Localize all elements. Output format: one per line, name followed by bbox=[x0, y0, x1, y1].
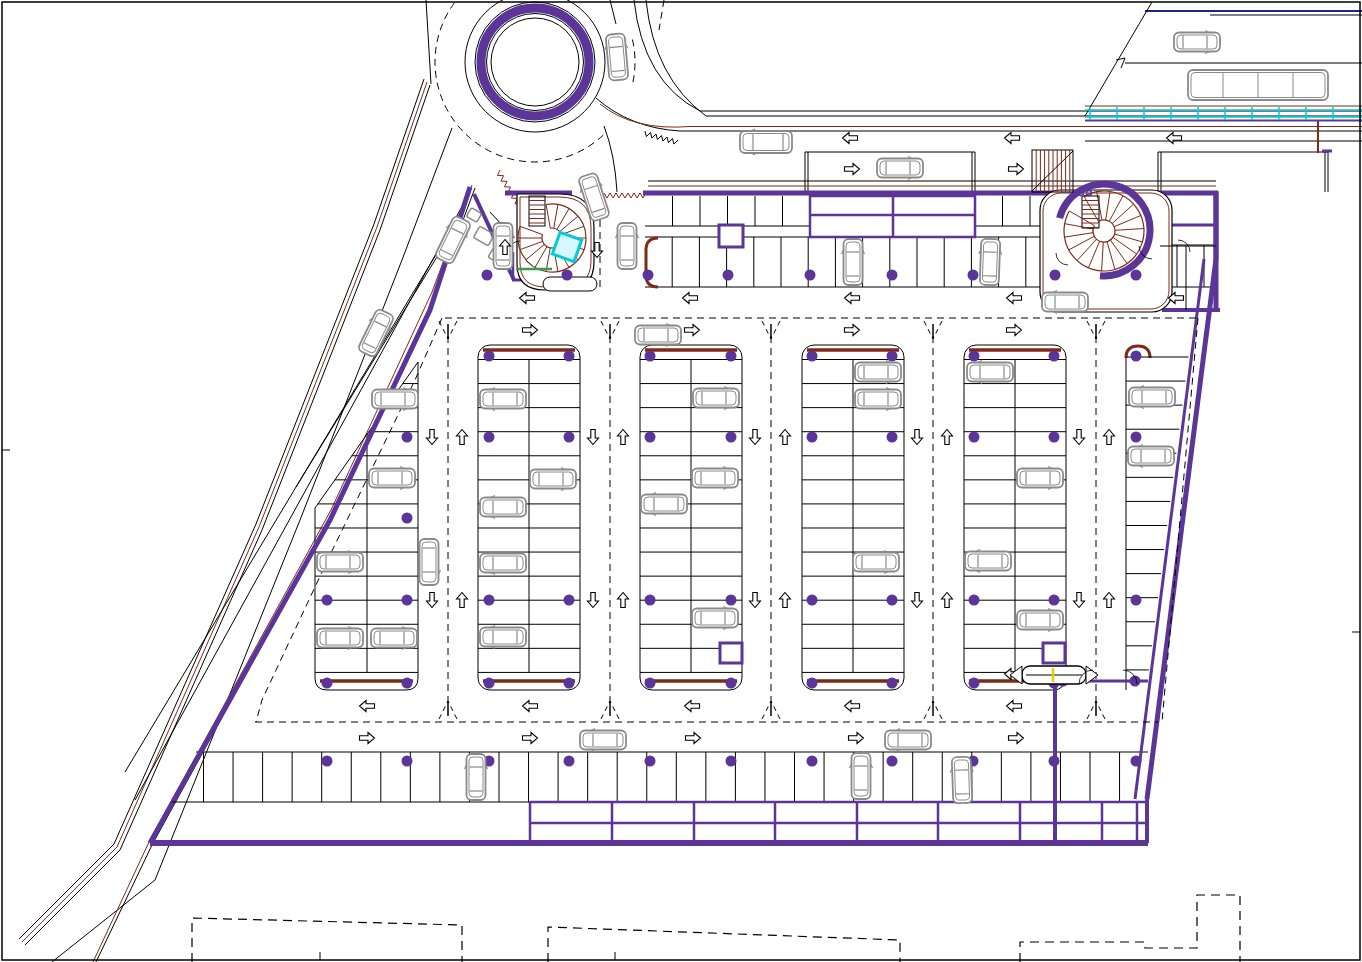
car-icon bbox=[850, 753, 873, 799]
direction-arrow-icon bbox=[843, 133, 858, 144]
vehicle-body bbox=[434, 215, 471, 265]
column-dot bbox=[807, 351, 818, 362]
column-dot bbox=[564, 678, 575, 689]
direction-arrow-icon bbox=[1005, 133, 1020, 144]
car-icon bbox=[480, 626, 526, 649]
aisle-merge-line bbox=[448, 321, 457, 339]
roundabout-circle bbox=[487, 14, 584, 111]
car-icon bbox=[480, 496, 526, 519]
car-icon bbox=[740, 129, 792, 155]
column-dot bbox=[1131, 432, 1142, 443]
direction-arrow-icon bbox=[780, 593, 791, 608]
column-dot bbox=[807, 678, 818, 689]
car-icon bbox=[418, 539, 441, 585]
aisle-merge-line bbox=[762, 321, 771, 339]
car-icon bbox=[1017, 609, 1063, 632]
column-dot bbox=[482, 270, 493, 281]
direction-arrow-icon bbox=[685, 701, 700, 712]
car-icon bbox=[1017, 467, 1063, 490]
wall-segment bbox=[1043, 643, 1065, 663]
car-icon bbox=[635, 324, 681, 347]
column-dot bbox=[807, 432, 818, 443]
column-dot bbox=[807, 756, 818, 767]
direction-arrow-icon bbox=[523, 733, 538, 744]
aisle-merge-line bbox=[1087, 321, 1096, 339]
hatch-marks bbox=[604, 193, 646, 198]
direction-arrow-icon bbox=[1074, 593, 1085, 608]
column-dot bbox=[645, 432, 656, 443]
direction-arrow-icon bbox=[845, 164, 860, 175]
sheet-border bbox=[2, 2, 1360, 960]
aisle-merge-line bbox=[439, 701, 448, 719]
future-building-outline bbox=[548, 927, 900, 962]
aisle-merge-line bbox=[933, 321, 942, 339]
direction-arrow-icon bbox=[1009, 733, 1024, 744]
aisle-dashed-line bbox=[256, 318, 442, 722]
car-icon bbox=[1174, 31, 1220, 54]
aisle-merge-line bbox=[601, 701, 610, 719]
road-line bbox=[52, 128, 452, 962]
column-dot bbox=[1131, 351, 1142, 362]
aisle-merge-line bbox=[762, 701, 771, 719]
car-icon bbox=[692, 607, 738, 630]
column-dot bbox=[1049, 595, 1060, 606]
aisle-merge-line bbox=[601, 321, 610, 339]
car-icon bbox=[530, 468, 576, 491]
aisle-merge-line bbox=[1087, 701, 1096, 719]
direction-arrow-icon bbox=[912, 593, 923, 608]
aisle-merge-line bbox=[1096, 321, 1105, 339]
column-dot bbox=[322, 678, 333, 689]
column-dot bbox=[887, 595, 898, 606]
column-dot bbox=[484, 678, 495, 689]
direction-arrow-icon bbox=[360, 701, 375, 712]
direction-arrow-icon bbox=[360, 733, 375, 744]
car-icon bbox=[853, 551, 899, 574]
future-building-outline bbox=[192, 918, 462, 962]
wall-segment bbox=[1135, 259, 1204, 799]
column-dot bbox=[322, 756, 333, 767]
direction-arrow-icon bbox=[618, 430, 629, 445]
column-dot bbox=[726, 432, 737, 443]
aisle-merge-line bbox=[924, 321, 933, 339]
direction-arrow-icon bbox=[588, 593, 599, 608]
direction-arrow-icon bbox=[520, 293, 535, 304]
column-dot bbox=[1049, 432, 1060, 443]
column-dot bbox=[726, 595, 737, 606]
direction-arrow-icon bbox=[750, 593, 761, 608]
direction-arrow-icon bbox=[523, 701, 538, 712]
wall-segment bbox=[719, 225, 743, 247]
column-dot bbox=[484, 595, 495, 606]
direction-arrow-icon bbox=[942, 593, 953, 608]
roundabout-dashed-circle bbox=[632, 40, 635, 83]
direction-arrow-icon bbox=[1007, 293, 1022, 304]
column-dot bbox=[645, 678, 656, 689]
car-icon bbox=[950, 757, 975, 804]
parking-islands bbox=[315, 345, 1189, 690]
car-icon bbox=[465, 754, 488, 800]
direction-arrow-icon bbox=[457, 593, 468, 608]
direction-arrow-icon bbox=[1167, 133, 1182, 144]
direction-arrow-icon bbox=[686, 733, 701, 744]
column-dot bbox=[564, 432, 575, 443]
road-line bbox=[1121, 58, 1125, 68]
roundabout-circle bbox=[475, 2, 595, 122]
aisle-merge-line bbox=[924, 701, 933, 719]
column-dot bbox=[807, 595, 818, 606]
column-dot bbox=[484, 351, 495, 362]
car-icon bbox=[641, 493, 687, 516]
roundabout bbox=[435, 0, 635, 162]
column-dot bbox=[645, 595, 656, 606]
column-dot bbox=[484, 432, 495, 443]
column-dot bbox=[1049, 756, 1060, 767]
direction-arrow-icon bbox=[457, 430, 468, 445]
column-dot bbox=[645, 756, 656, 767]
direction-arrow-icon bbox=[427, 430, 438, 445]
car-icon bbox=[616, 223, 639, 269]
column-dot bbox=[564, 756, 575, 767]
direction-arrow-icon bbox=[780, 430, 791, 445]
column-dot bbox=[969, 351, 980, 362]
column-dot bbox=[887, 678, 898, 689]
car-icon bbox=[692, 467, 738, 490]
structural-columns bbox=[322, 270, 1142, 767]
column-dot bbox=[402, 678, 413, 689]
direction-arrow-icon bbox=[1007, 701, 1022, 712]
column-dot bbox=[969, 595, 980, 606]
aisle-merge-line bbox=[771, 321, 780, 339]
road-line bbox=[19, 79, 424, 939]
column-dot bbox=[968, 270, 979, 281]
direction-arrow-icon bbox=[845, 701, 860, 712]
column-dot bbox=[726, 351, 737, 362]
car-icon bbox=[1129, 386, 1175, 409]
direction-arrow-icon bbox=[845, 293, 860, 304]
column-dot bbox=[1049, 351, 1060, 362]
road-line bbox=[1116, 58, 1125, 60]
direction-arrow-icon bbox=[845, 325, 860, 336]
car-icon bbox=[480, 552, 526, 575]
car-icon bbox=[1042, 291, 1088, 314]
column-dot bbox=[645, 351, 656, 362]
aisle-merge-line bbox=[933, 701, 942, 719]
car-icon bbox=[855, 361, 901, 384]
wall-segment bbox=[720, 643, 742, 663]
car-icon bbox=[885, 729, 931, 752]
road-line bbox=[135, 192, 470, 800]
direction-arrow-icon bbox=[1007, 325, 1022, 336]
car-icon bbox=[369, 467, 415, 490]
column-dot bbox=[562, 270, 573, 281]
road-line bbox=[604, 126, 617, 192]
direction-arrow-icon bbox=[427, 593, 438, 608]
column-dot bbox=[887, 270, 898, 281]
column-dot bbox=[887, 351, 898, 362]
road-line bbox=[25, 85, 430, 945]
sheet-boundary bbox=[2, 2, 1360, 962]
direction-arrow-icon bbox=[1074, 430, 1085, 445]
column-dot bbox=[1050, 270, 1061, 281]
car-icon bbox=[978, 239, 1003, 286]
column-dot bbox=[643, 270, 654, 281]
column-dot bbox=[402, 756, 413, 767]
column-dot bbox=[1131, 270, 1142, 281]
site-plan-page bbox=[0, 0, 1362, 962]
car-icon bbox=[433, 214, 474, 265]
aisle-merge-line bbox=[448, 701, 457, 719]
car-icon bbox=[965, 550, 1011, 573]
direction-arrow-icon bbox=[683, 293, 698, 304]
car-icon bbox=[1128, 445, 1174, 468]
wall-segment bbox=[150, 187, 470, 843]
car-icon bbox=[480, 388, 526, 411]
column-dot bbox=[564, 595, 575, 606]
aisle-merge-line bbox=[439, 321, 448, 339]
direction-arrow-icon bbox=[1104, 593, 1115, 608]
direction-arrow-icon bbox=[685, 325, 700, 336]
column-dot bbox=[402, 595, 413, 606]
vehicle-body bbox=[740, 131, 792, 153]
future-building-outline bbox=[1020, 895, 1240, 962]
stair-cores bbox=[466, 150, 1216, 312]
road-line bbox=[610, 0, 616, 24]
column-dot bbox=[887, 756, 898, 767]
car-icon bbox=[317, 551, 363, 574]
car-icon bbox=[693, 387, 739, 410]
direction-arrow-icon bbox=[750, 430, 761, 445]
parking-island bbox=[964, 345, 1066, 690]
direction-arrow-icon bbox=[618, 593, 629, 608]
car-icon bbox=[580, 729, 626, 752]
road-line bbox=[426, 0, 431, 84]
column-dot bbox=[723, 270, 734, 281]
column-dot bbox=[322, 595, 333, 606]
aisle-merge-line bbox=[610, 701, 619, 719]
parking-garage-site-plan bbox=[0, 0, 1362, 962]
car-icon bbox=[967, 361, 1013, 384]
aisle-merge-line bbox=[771, 701, 780, 719]
car-icon bbox=[372, 388, 418, 411]
car-icon bbox=[842, 239, 865, 285]
column-dot bbox=[402, 513, 413, 524]
hatch-marks bbox=[645, 131, 678, 144]
aisle-merge-line bbox=[610, 321, 619, 339]
direction-arrow-icon bbox=[849, 733, 864, 744]
wall-segment bbox=[1147, 259, 1216, 799]
road-line bbox=[22, 82, 427, 942]
column-dot bbox=[805, 270, 816, 281]
direction-arrow-icon bbox=[912, 430, 923, 445]
bus-icon bbox=[1188, 70, 1328, 100]
direction-arrow-icon bbox=[1104, 430, 1115, 445]
column-dot bbox=[726, 756, 737, 767]
column-dot bbox=[564, 351, 575, 362]
column-dot bbox=[726, 678, 737, 689]
car-icon bbox=[317, 627, 363, 650]
column-dot bbox=[887, 432, 898, 443]
column-dot bbox=[1131, 595, 1142, 606]
column-dot bbox=[969, 678, 980, 689]
direction-arrow-icon bbox=[523, 325, 538, 336]
column-dot bbox=[402, 432, 413, 443]
direction-arrow-icon bbox=[942, 430, 953, 445]
car-icon bbox=[855, 388, 901, 411]
vehicles bbox=[317, 31, 1328, 804]
car-icon bbox=[877, 157, 923, 180]
roundabout-circle bbox=[481, 8, 589, 116]
car-icon bbox=[371, 627, 417, 650]
roundabout-circle bbox=[491, 18, 579, 106]
aisle-merge-line bbox=[1096, 701, 1105, 719]
road-line bbox=[659, 0, 664, 30]
direction-arrow-icon bbox=[1009, 164, 1024, 175]
direction-arrow-icon bbox=[588, 430, 599, 445]
car-icon bbox=[604, 33, 631, 81]
column-dot bbox=[969, 432, 980, 443]
column-dot bbox=[1131, 756, 1142, 767]
aisle-dashed-line bbox=[1162, 318, 1198, 722]
